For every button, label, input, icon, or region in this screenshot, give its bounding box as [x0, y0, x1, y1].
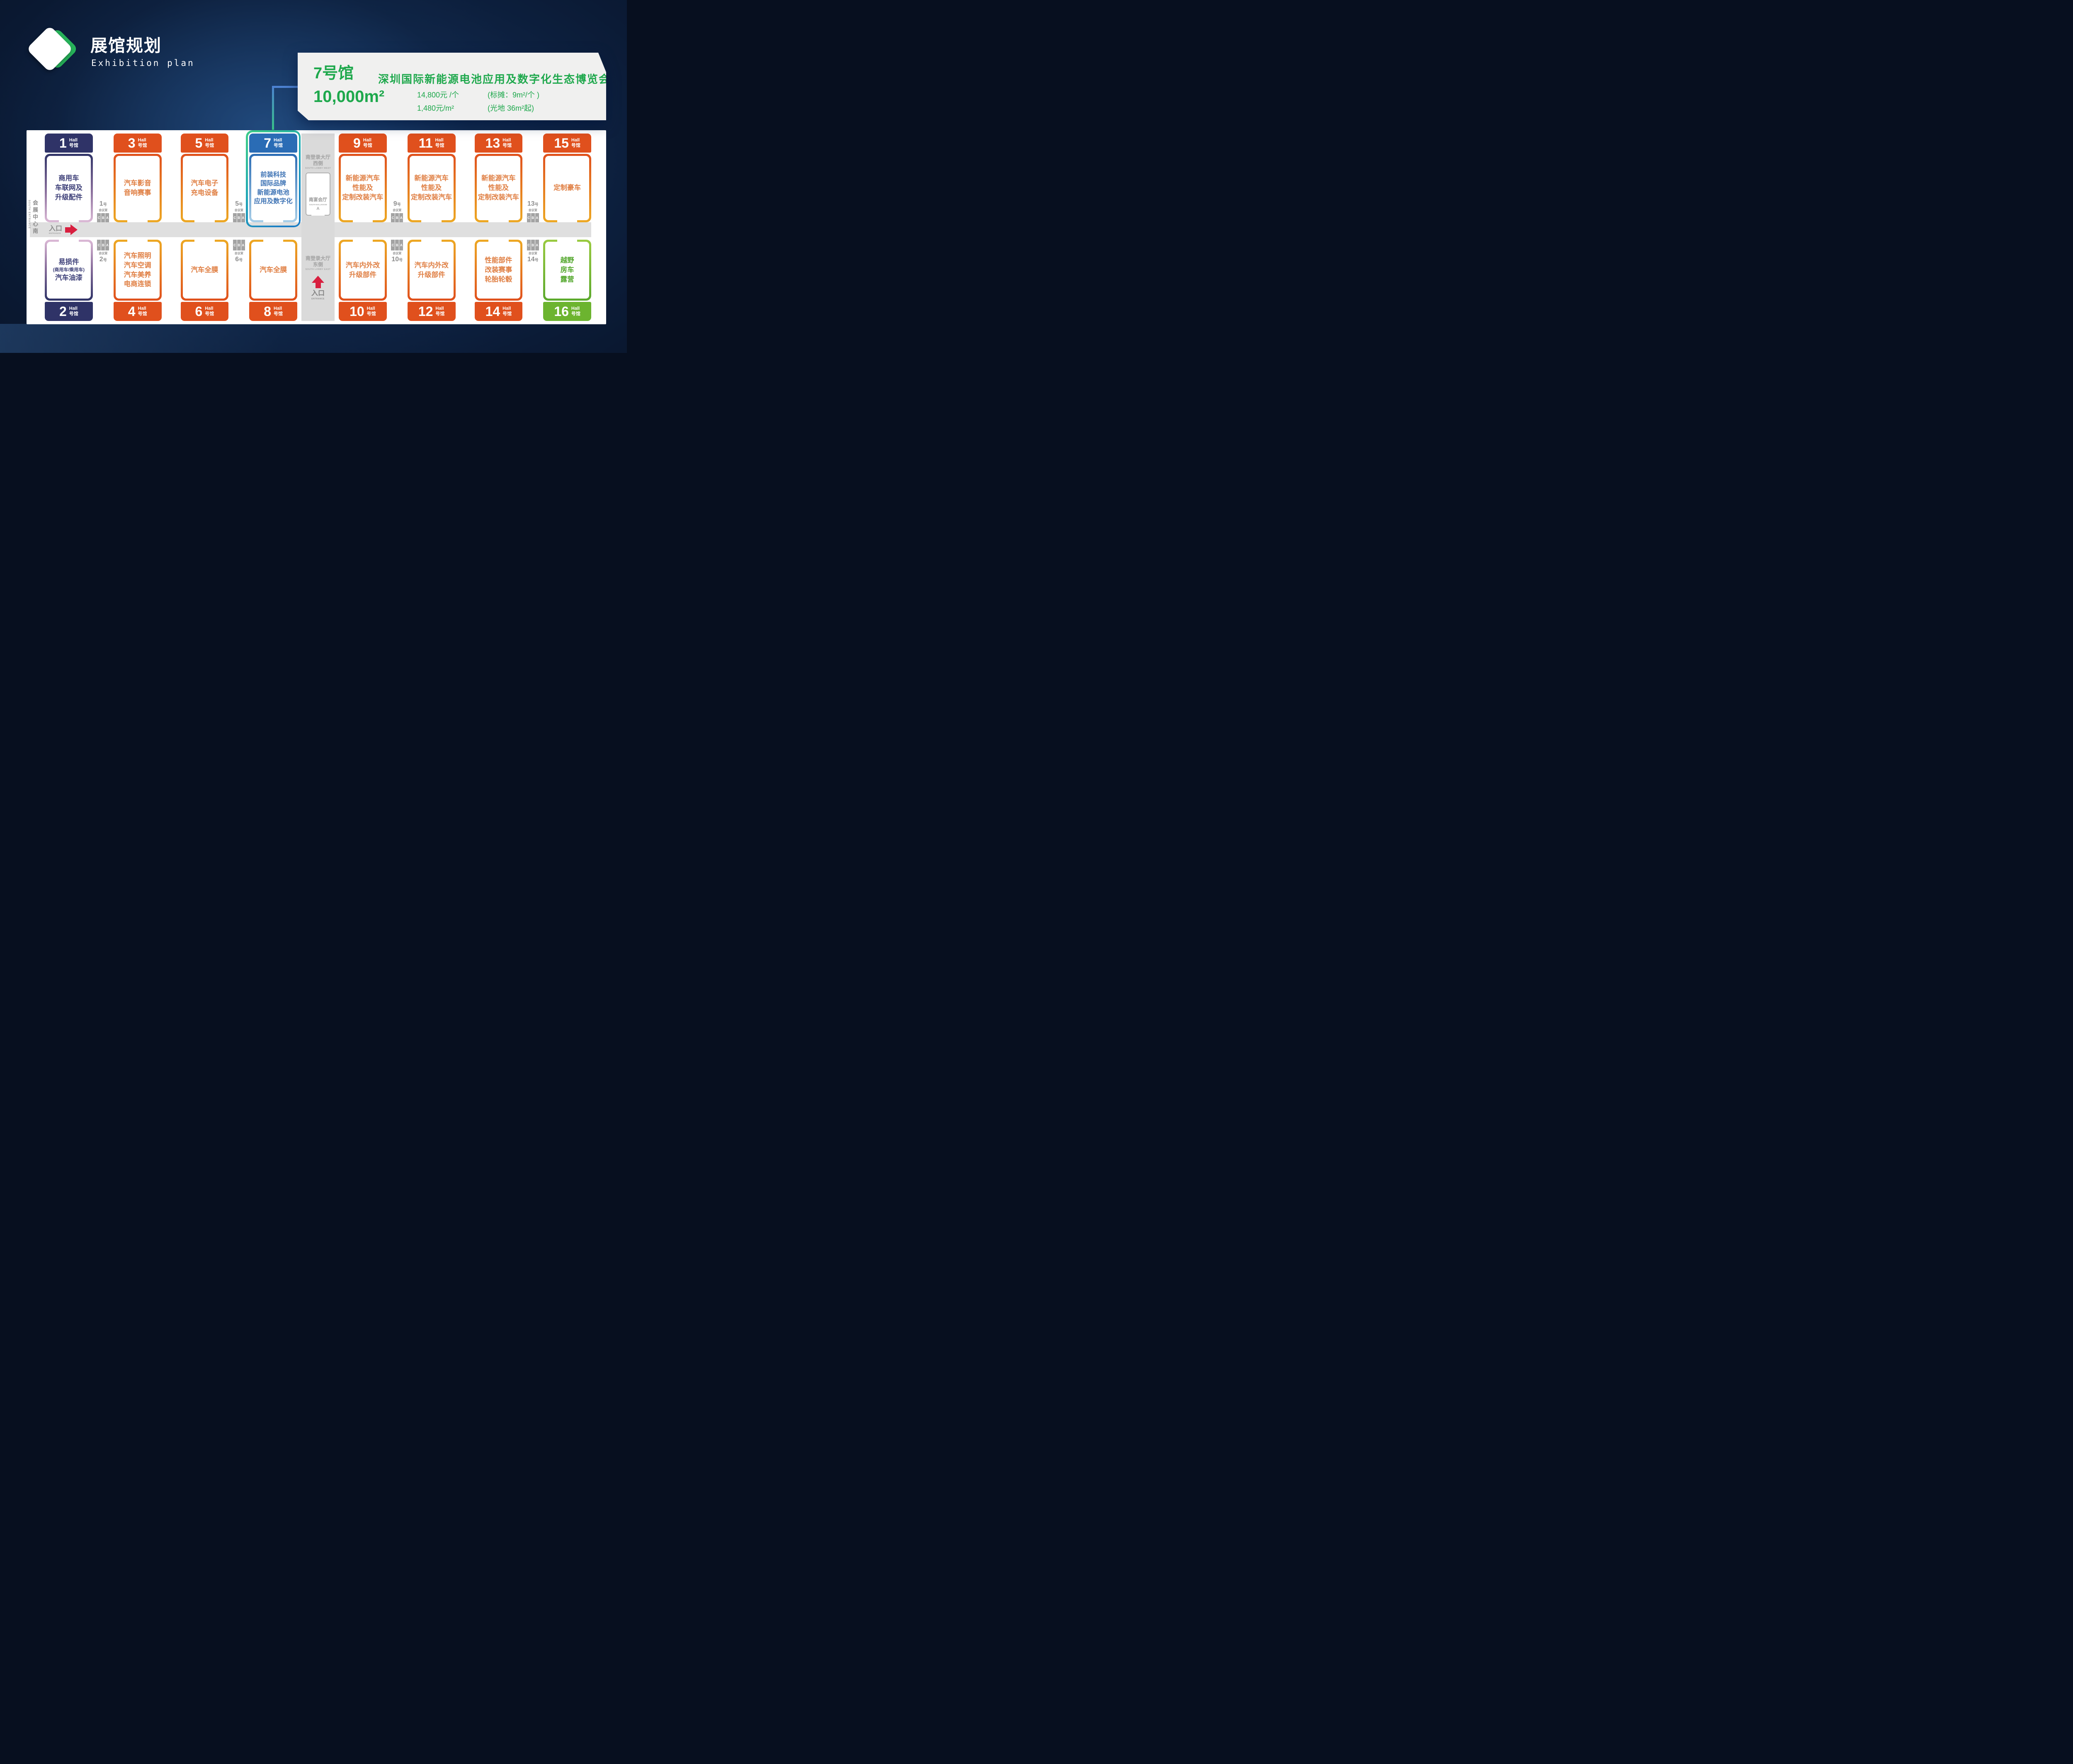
hall-label-cn: 号馆	[502, 311, 512, 317]
hall-number: 5	[195, 136, 202, 150]
ballroom-cn: 南宴会厅	[309, 196, 327, 203]
hall-label-stack: Hall号馆	[367, 306, 376, 317]
meeting-num-suffix: 号	[103, 202, 107, 207]
meeting-num-text: 5	[235, 200, 239, 207]
hall-label-cn: 号馆	[274, 143, 283, 148]
aisle-gap	[460, 134, 471, 222]
meeting-rooms-5: 5号 会议室 CBA	[233, 134, 245, 222]
meeting-room-boxes: CBA	[391, 240, 403, 250]
hall-9-header: 9 Hall号馆	[339, 134, 387, 153]
hall-label-en: Hall	[205, 138, 214, 143]
room-c: C	[233, 213, 237, 222]
meeting-room-boxes: CBA	[233, 213, 245, 222]
hall-label-en: Hall	[205, 306, 214, 311]
meeting-label: 会议室	[235, 208, 243, 212]
callout: 7号馆 10,000m² 深圳国际新能源电池应用及数字化生态博览会 14,800…	[298, 53, 606, 120]
hall-7-header: 7 Hall号馆	[249, 134, 297, 153]
hall-number: 9	[353, 136, 361, 150]
meeting-label: 会议室	[235, 251, 243, 255]
hall-label-en: Hall	[274, 138, 283, 143]
hall-9-content: 新能源汽车 性能及 定制改装汽车	[341, 156, 385, 220]
hall-10-header: 10 Hall号馆	[339, 302, 387, 321]
room-a: A	[241, 213, 245, 222]
hall-2-content: 易损件 (商用车/乘用车) 汽车油漆	[47, 242, 91, 299]
hall-label-cn: 号馆	[571, 143, 580, 148]
hall-label-cn: 号馆	[138, 311, 147, 317]
hall-5[interactable]: 5 Hall号馆 汽车电子 充电设备	[181, 134, 229, 222]
room-c: C	[391, 240, 395, 250]
lobby-east-en: SOUTH LOBBY EAST	[306, 268, 331, 271]
hall-12-body: 汽车内外改 升级部件	[408, 240, 456, 301]
room-c: C	[97, 213, 101, 222]
logo-white-diamond-icon	[26, 25, 73, 72]
meeting-num-suffix: 号	[239, 258, 243, 262]
meeting-label: 会议室	[393, 208, 401, 212]
meeting-num-text: 14	[527, 256, 535, 263]
hall-11-content: 新能源汽车 性能及 定制改装汽车	[410, 156, 454, 220]
room-a: A	[399, 240, 403, 250]
hall-6-content: 汽车全膜	[183, 242, 227, 299]
hall-3-content: 汽车影音 音响赛事	[116, 156, 160, 220]
meeting-label: 会议室	[529, 208, 537, 212]
hall-15[interactable]: 15 Hall号馆 定制豪车	[543, 134, 591, 222]
meeting-rooms-6: CBA 会议室 6号	[233, 240, 245, 321]
hall-2-line1: 易损件	[58, 258, 79, 267]
hall-label-stack: Hall号馆	[274, 306, 283, 317]
meeting-room-boxes: CBA	[527, 213, 539, 222]
meeting-label: 会议室	[99, 251, 107, 255]
hall-number: 14	[485, 305, 500, 318]
hall-number: 4	[128, 305, 136, 318]
room-b: B	[531, 213, 535, 222]
booth-price-note: (标摊：9m²/个 )	[488, 89, 539, 100]
hall-label-en: Hall	[138, 138, 147, 143]
hall-13-body: 新能源汽车 性能及 定制改装汽车	[475, 154, 523, 222]
hall-2-line2: (商用车/乘用车)	[53, 267, 85, 273]
hall-number: 15	[554, 136, 569, 150]
aisle-gap	[166, 240, 177, 321]
meeting-rooms-9: 9号 会议室 CBA	[391, 134, 403, 222]
meeting-label: 会议室	[99, 208, 107, 212]
hall-number: 3	[128, 136, 136, 150]
hall-6-body: 汽车全膜	[181, 240, 229, 301]
meeting-label: 会议室	[393, 251, 401, 255]
ballroom-section: A	[316, 207, 319, 211]
south-ballroom: 南宴会厅 SOUTH BALLROOM A	[306, 173, 330, 216]
hall-5-body: 汽车电子 充电设备	[181, 154, 229, 222]
hall-label-cn: 号馆	[69, 311, 78, 317]
hall-label-en: Hall	[435, 138, 444, 143]
east-entrance-en: ENTRANCE	[311, 298, 325, 300]
hall-10[interactable]: 汽车内外改 升级部件 10 Hall号馆	[339, 240, 387, 321]
meeting-room-boxes: CBA	[233, 240, 245, 250]
room-c: C	[391, 213, 395, 222]
hall-label-en: Hall	[435, 306, 444, 311]
hall-13-header: 13 Hall号馆	[475, 134, 523, 153]
hall-8-header: 8 Hall号馆	[249, 302, 297, 321]
hall-7-body: 前装科技 国际品牌 新能源电池 应用及数字化	[249, 154, 297, 222]
meeting-num-suffix: 号	[103, 258, 107, 262]
hall-15-content: 定制豪车	[545, 156, 589, 220]
south-lobby-west: 南登录大厅 西侧 SOUTH LOBBY WEST 南宴会厅 SOUTH BAL…	[301, 134, 335, 241]
entrance-up-arrow-icon	[312, 276, 324, 288]
callout-connector-vertical	[272, 86, 274, 130]
meeting-rooms-1: 1号 会议室 CBA	[97, 134, 109, 222]
callout-hall-area: 10,000m²	[313, 87, 384, 106]
hall-11-header: 11 Hall号馆	[408, 134, 456, 153]
hall-label-stack: Hall号馆	[274, 138, 283, 148]
room-c: C	[527, 213, 531, 222]
room-c: C	[527, 240, 531, 250]
hall-number: 8	[264, 305, 271, 318]
hall-4-content: 汽车照明 汽车空调 汽车美养 电商连锁	[116, 242, 160, 299]
hall-number: 6	[195, 305, 202, 318]
entrance-text: 入口 ENTRANCE	[49, 226, 62, 234]
lobby-west-line2: 西侧	[305, 160, 331, 167]
south-entrance-en: SOUTH ENTRANCE	[28, 200, 30, 235]
callout-expo-title: 深圳国际新能源电池应用及数字化生态博览会	[378, 71, 610, 86]
hall-number: 10	[350, 305, 364, 318]
hall-3-header: 3 Hall号馆	[114, 134, 162, 153]
meeting-num-text: 2	[100, 256, 103, 263]
hall-row-bottom: 易损件 (商用车/乘用车) 汽车油漆 2 Hall号馆 CBA 会议室 2号 汽…	[45, 240, 591, 321]
lobby-west-slot: 南登录大厅 西侧 SOUTH LOBBY WEST 南宴会厅 SOUTH BAL…	[301, 134, 335, 222]
hall-13[interactable]: 13 Hall号馆 新能源汽车 性能及 定制改装汽车	[475, 134, 523, 222]
hall-label-cn: 号馆	[571, 311, 580, 317]
hall-label-stack: Hall号馆	[571, 306, 580, 317]
hall-label-stack: Hall号馆	[502, 306, 512, 317]
hall-7-content: 前装科技 国际品牌 新能源电池 应用及数字化	[251, 156, 295, 220]
south-entrance-marker: 入口 ENTRANCE	[49, 224, 78, 235]
meeting-rooms-10: CBA 会议室 10号	[391, 240, 403, 321]
aisle-gap	[166, 134, 177, 222]
hall-label-stack: Hall号馆	[363, 138, 372, 148]
hall-6-header: 6 Hall号馆	[181, 302, 229, 321]
east-entrance-cn: 入口	[311, 290, 325, 297]
page-title: 展馆规划	[90, 32, 162, 56]
meeting-number: 10号	[391, 256, 403, 263]
room-a: A	[535, 240, 539, 250]
exhibition-plan-slide: 展馆规划 Exhibition plan 7号馆 10,000m² 深圳国际新能…	[0, 0, 627, 353]
meeting-number: 1号	[100, 201, 107, 207]
meeting-num-suffix: 号	[397, 202, 401, 207]
hall-label-stack: Hall号馆	[138, 138, 147, 148]
hall-label-cn: 号馆	[435, 311, 444, 317]
hall-label-cn: 号馆	[274, 311, 283, 317]
entrance-cn: 入口	[49, 226, 62, 232]
hall-9-body: 新能源汽车 性能及 定制改装汽车	[339, 154, 387, 222]
ballroom-en: SOUTH BALLROOM	[309, 204, 327, 206]
meeting-number: 6号	[235, 256, 243, 263]
hall-12[interactable]: 汽车内外改 升级部件 12 Hall号馆	[408, 240, 456, 321]
hall-label-en: Hall	[138, 306, 147, 311]
south-entrance-cn: 会展中心南	[31, 200, 39, 235]
hall-label-cn: 号馆	[69, 143, 78, 148]
hall-9[interactable]: 9 Hall号馆 新能源汽车 性能及 定制改装汽车	[339, 134, 387, 222]
hall-2[interactable]: 易损件 (商用车/乘用车) 汽车油漆 2 Hall号馆	[45, 240, 93, 321]
hall-14[interactable]: 性能部件 改装赛事 轮胎轮毂 14 Hall号馆	[475, 240, 523, 321]
meeting-room-boxes: CBA	[97, 240, 109, 250]
hall-label-en: Hall	[69, 138, 78, 143]
hall-14-content: 性能部件 改装赛事 轮胎轮毂	[477, 242, 521, 299]
meeting-num-suffix: 号	[535, 202, 539, 207]
meeting-rooms-14: CBA 会议室 14号	[527, 240, 539, 321]
hall-11[interactable]: 11 Hall号馆 新能源汽车 性能及 定制改装汽车	[408, 134, 456, 222]
room-b: B	[395, 213, 399, 222]
hall-3[interactable]: 3 Hall号馆 汽车影音 音响赛事	[114, 134, 162, 222]
hall-number: 1	[59, 136, 67, 150]
south-entrance-label: SOUTH ENTRANCE 会展中心南	[28, 200, 39, 235]
meeting-num-suffix: 号	[535, 258, 539, 262]
hall-number: 7	[264, 136, 271, 150]
hall-3-body: 汽车影音 音响赛事	[114, 154, 162, 222]
hall-1-content: 商用车 车联网及 升级配件	[47, 156, 91, 220]
hall-label-cn: 号馆	[138, 143, 147, 148]
meeting-num-suffix: 号	[399, 258, 403, 262]
hall-15-header: 15 Hall号馆	[543, 134, 591, 153]
meeting-room-boxes: CBA	[97, 213, 109, 222]
meeting-num-text: 9	[393, 200, 397, 207]
hall-label-stack: Hall号馆	[435, 138, 444, 148]
hall-row-top: 1 Hall号馆 商用车 车联网及 升级配件 1号 会议室 CBA 3 Hall…	[45, 134, 591, 222]
hall-10-content: 汽车内外改 升级部件	[341, 242, 385, 299]
hall-label-en: Hall	[571, 306, 580, 311]
meeting-num-suffix: 号	[239, 202, 243, 207]
hall-13-content: 新能源汽车 性能及 定制改装汽车	[477, 156, 521, 220]
space-price: 1,480元/m²	[417, 102, 454, 113]
room-b: B	[531, 240, 535, 250]
hall-label-stack: Hall号馆	[502, 138, 512, 148]
hall-label-cn: 号馆	[435, 143, 444, 148]
room-a: A	[105, 240, 109, 250]
hall-2-header: 2 Hall号馆	[45, 302, 93, 321]
hall-15-body: 定制豪车	[543, 154, 591, 222]
meeting-num-text: 1	[100, 200, 103, 207]
room-b: B	[237, 213, 241, 222]
hall-5-content: 汽车电子 充电设备	[183, 156, 227, 220]
hall-2-body: 易损件 (商用车/乘用车) 汽车油漆	[45, 240, 93, 301]
room-b: B	[101, 240, 105, 250]
south-lobby-east: 南登录大厅 东侧 SOUTH LOBBY EAST 入口 ENTRANCE	[301, 237, 335, 321]
hall-8-body: 汽车全膜	[249, 240, 297, 301]
hall-number: 13	[485, 136, 500, 150]
hall-5-header: 5 Hall号馆	[181, 134, 229, 153]
aisle-gap	[460, 240, 471, 321]
meeting-number: 14号	[527, 256, 539, 263]
hall-14-body: 性能部件 改装赛事 轮胎轮毂	[475, 240, 523, 301]
meeting-number: 2号	[100, 256, 107, 263]
meeting-room-boxes: CBA	[391, 213, 403, 222]
room-b: B	[101, 213, 105, 222]
lobby-east-line2: 东侧	[306, 262, 331, 268]
hall-number: 16	[554, 305, 569, 318]
room-a: A	[241, 240, 245, 250]
meeting-num-text: 13	[527, 200, 535, 207]
hall-label-en: Hall	[502, 138, 512, 143]
space-price-note: (光地 36m²起)	[488, 102, 534, 113]
hall-4-body: 汽车照明 汽车空调 汽车美养 电商连锁	[114, 240, 162, 301]
hall-7[interactable]: 7 Hall号馆 前装科技 国际品牌 新能源电池 应用及数字化	[249, 134, 297, 222]
hall-label-cn: 号馆	[205, 311, 214, 317]
hall-label-stack: Hall号馆	[435, 306, 444, 317]
room-c: C	[97, 240, 101, 250]
hall-6[interactable]: 汽车全膜 6 Hall号馆	[181, 240, 229, 321]
hall-14-header: 14 Hall号馆	[475, 302, 523, 321]
hall-1-header: 1 Hall号馆	[45, 134, 93, 153]
hall-16-body: 越野 房车 露营	[543, 240, 591, 301]
callout-hall-name: 7号馆	[313, 60, 354, 83]
hall-11-body: 新能源汽车 性能及 定制改装汽车	[408, 154, 456, 222]
hall7-callout: 7号馆 10,000m² 深圳国际新能源电池应用及数字化生态博览会 14,800…	[298, 53, 606, 120]
floor-plan: 入口 ENTRANCE SOUTH ENTRANCE 会展中心南 1 Hall号…	[27, 130, 606, 324]
meeting-label: 会议室	[529, 251, 537, 255]
hall-label-en: Hall	[571, 138, 580, 143]
entrance-en: ENTRANCE	[49, 232, 62, 234]
meeting-number: 9号	[393, 201, 401, 207]
hall-12-header: 12 Hall号馆	[408, 302, 456, 321]
meeting-rooms-13: 13号 会议室 CBA	[527, 134, 539, 222]
hall-label-stack: Hall号馆	[69, 138, 78, 148]
page-subtitle: Exhibition plan	[91, 58, 195, 68]
hall-label-cn: 号馆	[367, 311, 376, 317]
callout-connector-horizontal	[272, 86, 299, 88]
hall-label-en: Hall	[69, 306, 78, 311]
meeting-num-text: 6	[235, 256, 239, 263]
hall-label-stack: Hall号馆	[69, 306, 78, 317]
meeting-number: 5号	[235, 201, 243, 207]
hall-number: 12	[418, 305, 433, 318]
hall-label-en: Hall	[502, 306, 512, 311]
hall-16-content: 越野 房车 露营	[545, 242, 589, 299]
hall-label-en: Hall	[274, 306, 283, 311]
hall-label-stack: Hall号馆	[571, 138, 580, 148]
lobby-east-line1: 南登录大厅	[306, 255, 331, 262]
room-a: A	[535, 213, 539, 222]
room-a: A	[399, 213, 403, 222]
meeting-number: 13号	[527, 201, 539, 207]
hall-16-header: 16 Hall号馆	[543, 302, 591, 321]
south-lobby-east-label: 南登录大厅 东侧 SOUTH LOBBY EAST	[306, 255, 331, 271]
hall-label-cn: 号馆	[205, 143, 214, 148]
brand-logo	[29, 27, 80, 78]
hall-8-content: 汽车全膜	[251, 242, 295, 299]
meeting-room-boxes: CBA	[527, 240, 539, 250]
lobby-west-en: SOUTH LOBBY WEST	[305, 167, 331, 170]
hall-4-header: 4 Hall号馆	[114, 302, 162, 321]
hall-number: 2	[59, 305, 67, 318]
hall-1-body: 商用车 车联网及 升级配件	[45, 154, 93, 222]
lobby-east-slot: 南登录大厅 东侧 SOUTH LOBBY EAST 入口 ENTRANCE	[301, 240, 335, 321]
hall-label-cn: 号馆	[502, 143, 512, 148]
hall-12-content: 汽车内外改 升级部件	[410, 242, 454, 299]
hall-4[interactable]: 汽车照明 汽车空调 汽车美养 电商连锁 4 Hall号馆	[114, 240, 162, 321]
booth-price: 14,800元 /个	[417, 89, 459, 100]
hall-label-stack: Hall号馆	[205, 138, 214, 148]
room-b: B	[395, 240, 399, 250]
hall-label-stack: Hall号馆	[205, 306, 214, 317]
meeting-num-text: 10	[391, 256, 399, 263]
hall-1[interactable]: 1 Hall号馆 商用车 车联网及 升级配件	[45, 134, 93, 222]
hall-10-body: 汽车内外改 升级部件	[339, 240, 387, 301]
hall-2-line3: 汽车油漆	[55, 273, 83, 283]
room-a: A	[105, 213, 109, 222]
hall-label-cn: 号馆	[363, 143, 372, 148]
room-c: C	[233, 240, 237, 250]
hall-8[interactable]: 汽车全膜 8 Hall号馆	[249, 240, 297, 321]
room-b: B	[237, 240, 241, 250]
hall-number: 11	[419, 136, 433, 150]
entrance-right-arrow-icon	[65, 224, 78, 235]
hall-label-en: Hall	[367, 306, 376, 311]
hall-16[interactable]: 越野 房车 露营 16 Hall号馆	[543, 240, 591, 321]
hall-label-stack: Hall号馆	[138, 306, 147, 317]
hall-label-en: Hall	[363, 138, 372, 143]
lobby-west-line1: 南登录大厅	[305, 154, 331, 160]
meeting-rooms-2: CBA 会议室 2号	[97, 240, 109, 321]
south-lobby-west-label: 南登录大厅 西侧 SOUTH LOBBY WEST	[305, 154, 331, 170]
